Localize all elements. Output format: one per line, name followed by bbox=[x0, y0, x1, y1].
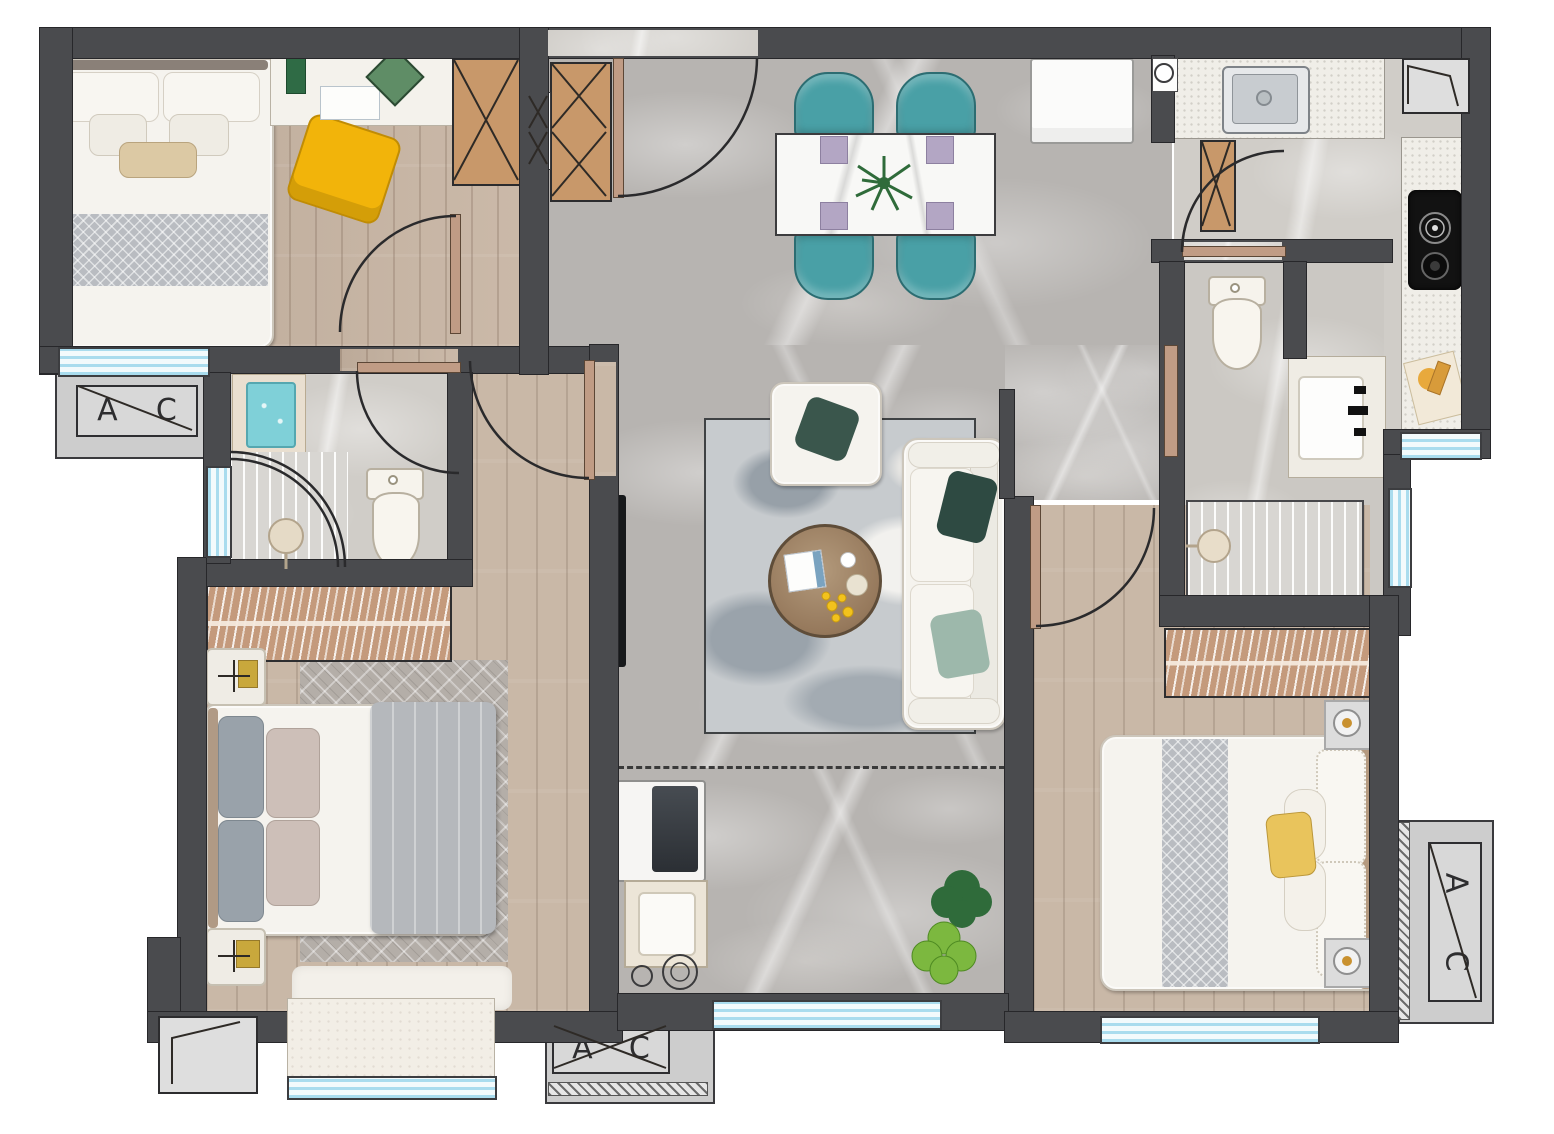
master-headboard bbox=[208, 708, 218, 928]
bedroom2-bed-runner bbox=[1162, 739, 1228, 987]
nightstand bbox=[1324, 700, 1374, 750]
ac-left-letter-a: A bbox=[97, 396, 118, 426]
master-bay-seat bbox=[287, 998, 495, 1080]
window-casement-southwest bbox=[158, 1016, 258, 1094]
hallway-floor bbox=[1005, 345, 1172, 500]
ac-box-bedroom2: A C bbox=[1428, 842, 1482, 1002]
bedroom2-wardrobe bbox=[1164, 628, 1374, 698]
window-kitchen-east bbox=[1400, 432, 1482, 460]
master-pillow-blush bbox=[266, 820, 320, 906]
desk-books bbox=[286, 58, 306, 94]
bedroom1-door-leaf bbox=[450, 214, 461, 334]
bathroom2-faucet-dot bbox=[1354, 428, 1366, 436]
bedroom1-headboard bbox=[57, 60, 268, 70]
placemat bbox=[820, 136, 848, 164]
dining-table bbox=[775, 133, 996, 236]
master-pillow-gray bbox=[218, 820, 264, 922]
water-heater bbox=[1152, 58, 1178, 92]
kitchen-door-leaf bbox=[1182, 246, 1286, 257]
ac-bed2-hatch bbox=[1398, 822, 1410, 1020]
ac-balcony-hatch bbox=[548, 1082, 708, 1096]
entry-shoe-cabinet bbox=[550, 62, 612, 202]
wall-bedroom1-right bbox=[520, 28, 548, 374]
toilet2-bowl bbox=[1212, 298, 1262, 370]
window-bathroom1-west bbox=[206, 466, 232, 558]
ac-box-left: A C bbox=[76, 385, 198, 437]
dining-chair bbox=[794, 230, 874, 300]
entry-threshold bbox=[548, 30, 758, 56]
entry-door-leaf bbox=[613, 58, 624, 198]
laundry-sink-basin bbox=[638, 892, 696, 956]
master-blanket bbox=[370, 702, 496, 934]
sofa bbox=[902, 438, 1006, 730]
nightstand bbox=[1324, 938, 1374, 988]
wall-bathroom1-bottom bbox=[206, 560, 472, 586]
bedroom1-bed-runner bbox=[57, 214, 268, 286]
wall-left-upper bbox=[40, 28, 72, 374]
master-bed bbox=[206, 704, 494, 936]
ac-left-letter-c: C bbox=[156, 396, 177, 426]
balcony-boundary-dashed bbox=[618, 766, 1005, 769]
wall-living-fin bbox=[1000, 390, 1014, 498]
sofa-armrest bbox=[908, 698, 1000, 724]
window-bedroom1-south bbox=[58, 347, 210, 377]
window-casement-northeast bbox=[1402, 58, 1470, 114]
ac-bed2-letter-c: C bbox=[1440, 951, 1470, 972]
bedroom1-wardrobe bbox=[452, 58, 524, 186]
nightstand-book-gold bbox=[238, 660, 258, 688]
nightstand-book-gold bbox=[236, 940, 260, 968]
master-pillow-gray bbox=[218, 716, 264, 818]
floor-plan: A C A C A C bbox=[0, 0, 1554, 1134]
kitchen-sink-basin bbox=[1232, 74, 1298, 124]
wall-toilet-divider bbox=[1284, 262, 1306, 358]
coffee-table-bowl bbox=[846, 574, 868, 596]
window-balcony bbox=[712, 1000, 942, 1030]
master-door-leaf bbox=[584, 360, 595, 480]
bathroom2-sliding-door bbox=[1164, 345, 1178, 457]
washing-machine-door bbox=[652, 786, 698, 872]
bedroom2-pillow-yellow bbox=[1265, 811, 1317, 879]
bathroom2-faucet-dot bbox=[1354, 386, 1366, 394]
master-pillow-blush bbox=[266, 728, 320, 818]
dining-chair bbox=[896, 230, 976, 300]
coffee-table-cup bbox=[840, 552, 856, 568]
bathroom1-shower-floor bbox=[230, 452, 348, 560]
bedroom1-bed bbox=[55, 58, 274, 349]
coffee-table-book bbox=[784, 550, 827, 593]
wall-top bbox=[40, 28, 1490, 58]
window-bedroom2-south bbox=[1100, 1016, 1320, 1044]
bedroom2-door-leaf bbox=[1030, 505, 1041, 629]
ac-bed2-letter-a: A bbox=[1440, 873, 1470, 894]
placemat bbox=[926, 136, 954, 164]
wall-bedroom2-top bbox=[1160, 596, 1394, 626]
placemat bbox=[820, 202, 848, 230]
dining-chair bbox=[794, 72, 874, 139]
kitchen-tall-cabinet bbox=[1200, 140, 1236, 232]
ac-balcony-letter-c: C bbox=[629, 1034, 650, 1064]
dining-chair bbox=[896, 72, 976, 139]
desk-papers bbox=[320, 86, 380, 120]
wall-bedroom2-left bbox=[1005, 497, 1033, 1042]
fridge bbox=[1030, 58, 1134, 144]
wall-master-left bbox=[178, 558, 206, 1014]
bathroom1-door-leaf bbox=[357, 362, 461, 373]
placemat bbox=[926, 202, 954, 230]
sofa-pillow-sage bbox=[929, 608, 991, 680]
wall-bedroom2-right bbox=[1370, 596, 1398, 1042]
window-bathroom2-east bbox=[1388, 488, 1412, 588]
master-door-threshold bbox=[592, 362, 616, 476]
bathroom2-shower-floor bbox=[1186, 500, 1364, 598]
bathroom1-basin bbox=[246, 382, 296, 448]
toilet1-bowl bbox=[372, 492, 420, 568]
cooktop bbox=[1408, 190, 1462, 290]
sofa-armrest bbox=[908, 442, 1000, 468]
wall-bathroom1-right bbox=[448, 373, 472, 569]
bathroom2-faucet bbox=[1348, 406, 1368, 415]
master-bay-glass bbox=[287, 1076, 497, 1100]
bedroom1-bolster bbox=[119, 142, 197, 178]
